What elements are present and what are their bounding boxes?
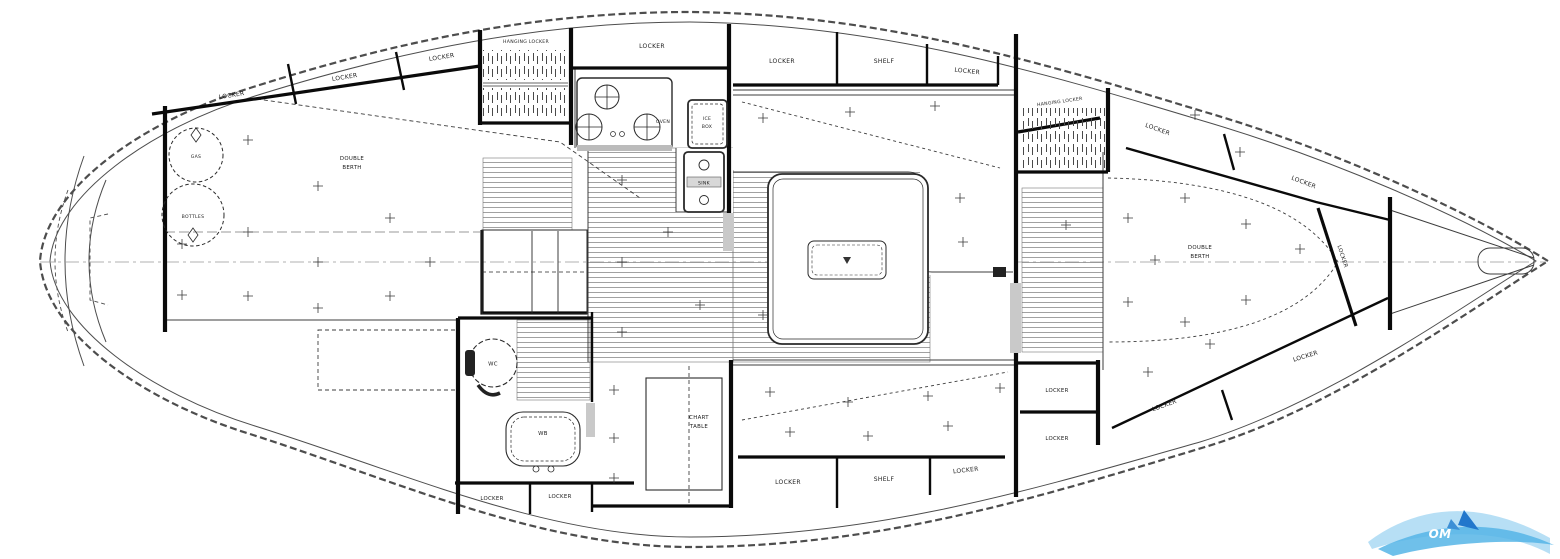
sole-fwd-cabin-foot <box>1022 188 1103 352</box>
saloon-port-locker-1-label: LOCKER <box>769 58 795 65</box>
aft-locker-1-label: LOCKER <box>219 90 246 101</box>
aft-berth-label-2: BERTH <box>342 165 361 171</box>
boat-floorplan-diagram: LOCKER LOCKER LOCKER HANGING LOCKER LOCK… <box>0 0 1560 559</box>
qtr-locker-1-label: LOCKER <box>775 479 801 486</box>
head-locker-2-label: LOCKER <box>548 494 571 500</box>
wc-label: WC <box>488 362 498 368</box>
transom-curve-3 <box>55 190 68 332</box>
icebox-label-2: BOX <box>702 124 712 130</box>
transom-curve-1 <box>65 156 84 366</box>
chart-table <box>646 366 722 506</box>
bottles-label: BOTTLES <box>182 214 205 220</box>
stacked-locker-1-label: LOCKER <box>1045 388 1068 394</box>
watermark-text: OM <box>1429 527 1452 541</box>
aft-locker-3-label: LOCKER <box>429 52 456 63</box>
saloon-table <box>768 174 928 344</box>
chart-table-label-1: CHART <box>689 415 709 421</box>
icebox-label-1: ICE <box>703 116 711 122</box>
wb-label: WB <box>538 431 548 437</box>
saloon-port-locker-2-label: LOCKER <box>954 67 980 77</box>
transom-step <box>90 214 108 305</box>
aft-locker-2-label: LOCKER <box>332 72 359 83</box>
fwd-port-locker-1-label: LOCKER <box>1144 122 1171 137</box>
sole-head <box>517 320 590 400</box>
fwd-stbd-locker-1-label: LOCKER <box>1151 398 1178 413</box>
fwd-port-locker-2-label: LOCKER <box>1290 175 1317 191</box>
mast-post <box>993 267 1006 277</box>
sink-label: SINK <box>698 181 711 187</box>
companionway-steps <box>482 230 587 314</box>
gas-bottles <box>162 128 224 246</box>
hanging-locker-aft-hatch2 <box>483 88 568 118</box>
aft-berth-label-1: DOUBLE <box>340 156 365 162</box>
transom-curve-2 <box>89 180 106 342</box>
hanging-locker-fwd-hatch <box>1020 108 1106 168</box>
chart-table-label-2: TABLE <box>689 424 708 430</box>
stacked-locker-2-label: LOCKER <box>1045 436 1068 442</box>
sole-aft-passage <box>483 158 572 230</box>
hanging-locker-aft-hatch <box>483 50 568 80</box>
fwd-berth-label-2: BERTH <box>1190 254 1209 260</box>
head-locker-1-label: LOCKER <box>480 496 503 502</box>
galley-overhead-locker-label: LOCKER <box>639 43 665 50</box>
qtr-shelf-label: SHELF <box>874 476 895 483</box>
hanging-locker-fwd-label: HANGING LOCKER <box>1037 96 1084 108</box>
fwd-berth-label-1: DOUBLE <box>1188 245 1213 251</box>
galley-stove <box>576 78 672 151</box>
saloon-port-shelf-label: SHELF <box>874 58 895 65</box>
wash-basin <box>506 412 580 472</box>
galley-icebox <box>688 100 727 148</box>
watermark-wave-logo: OM <box>1368 510 1554 556</box>
oven-label: OVEN <box>656 119 670 125</box>
gas-label: GAS <box>191 154 202 160</box>
fwd-stbd-locker-2-label: LOCKER <box>1292 349 1319 363</box>
qtr-locker-2-label: LOCKER <box>953 466 979 476</box>
hanging-locker-aft-label: HANGING LOCKER <box>503 39 549 45</box>
